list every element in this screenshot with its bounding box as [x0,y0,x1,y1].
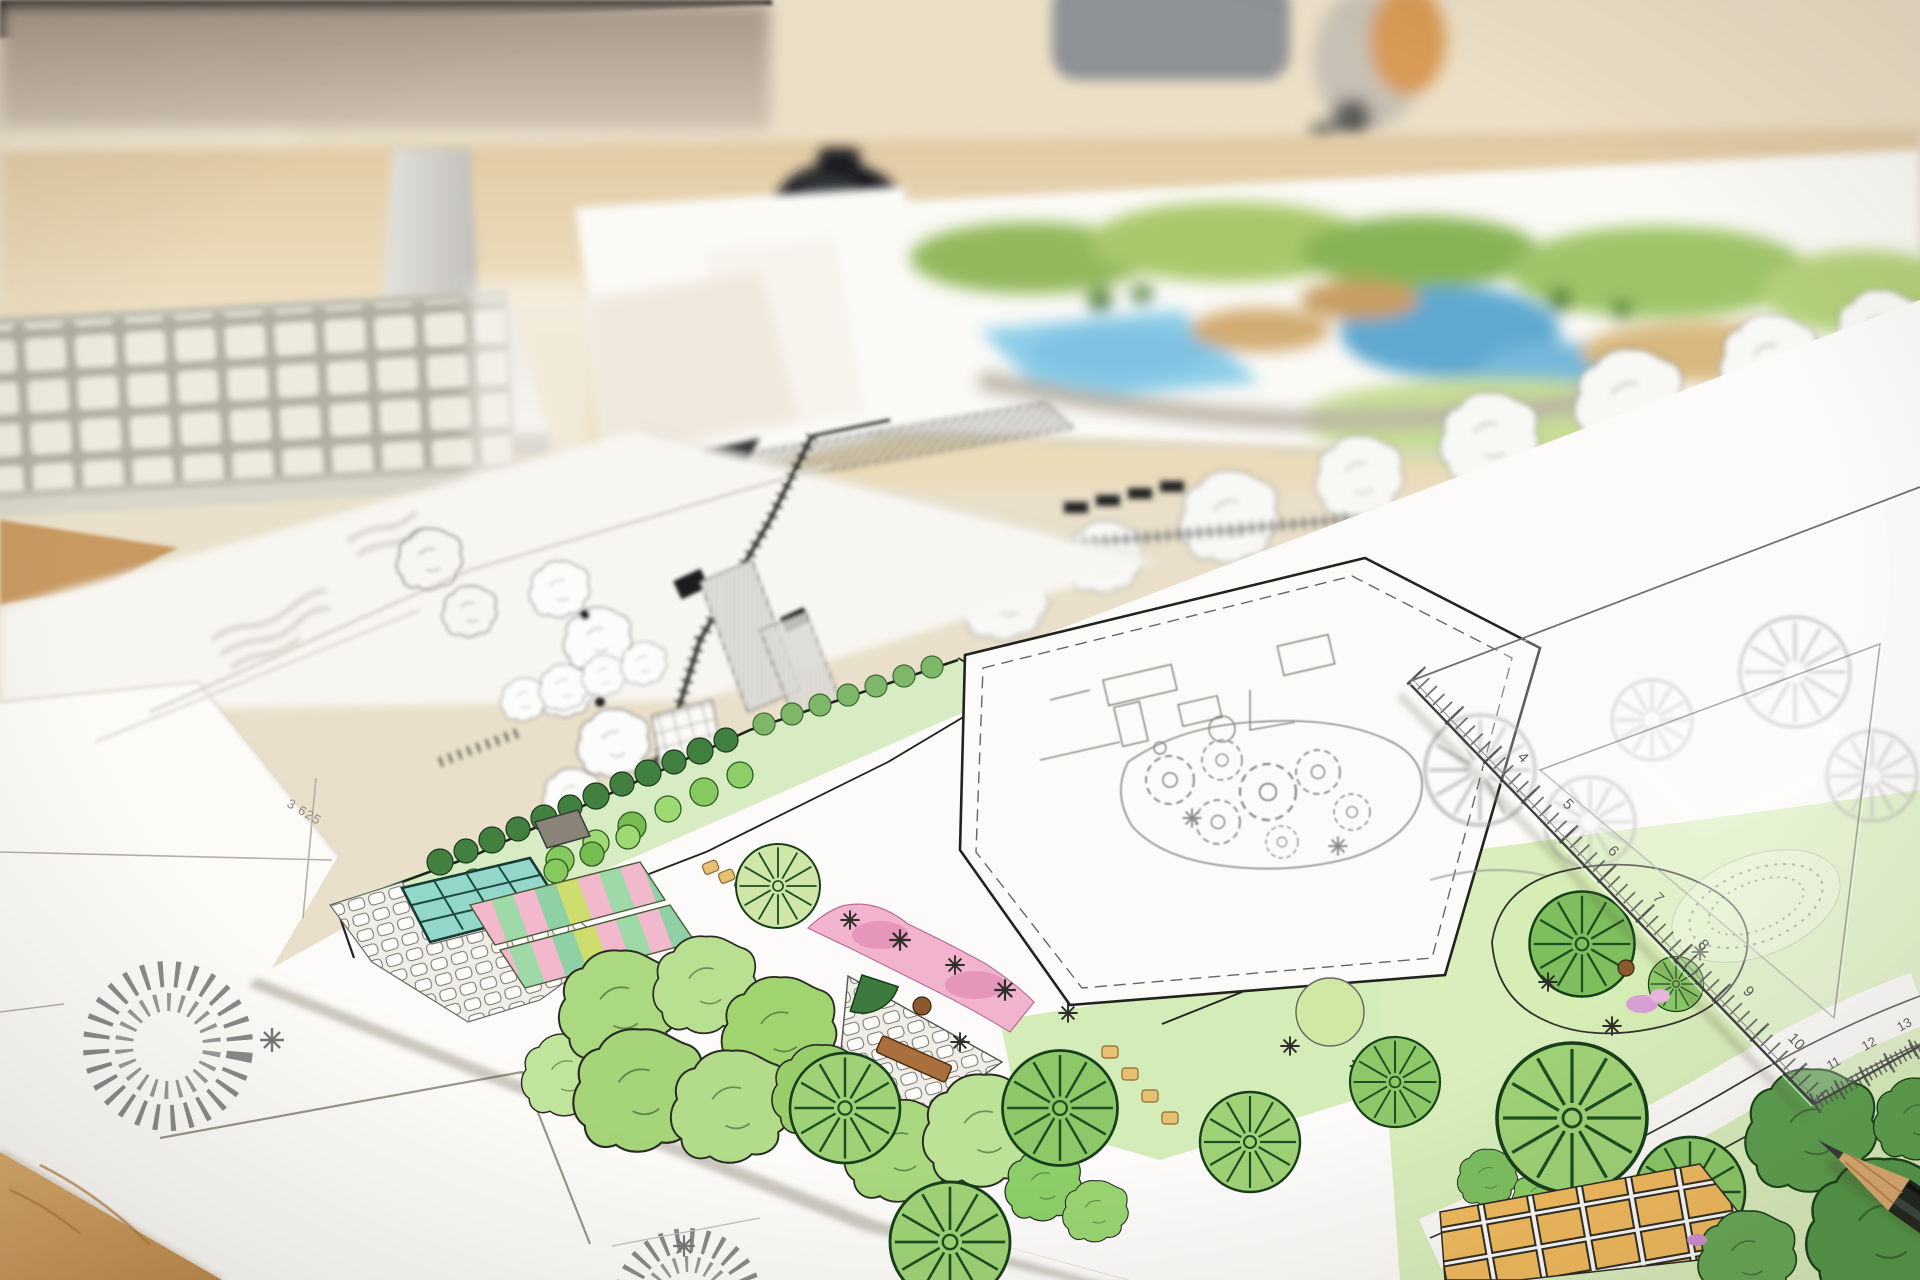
photo-scene: 3 625 [0,0,1920,1280]
scene-svg: 3 625 [0,0,1920,1280]
vignette [0,0,1920,1280]
